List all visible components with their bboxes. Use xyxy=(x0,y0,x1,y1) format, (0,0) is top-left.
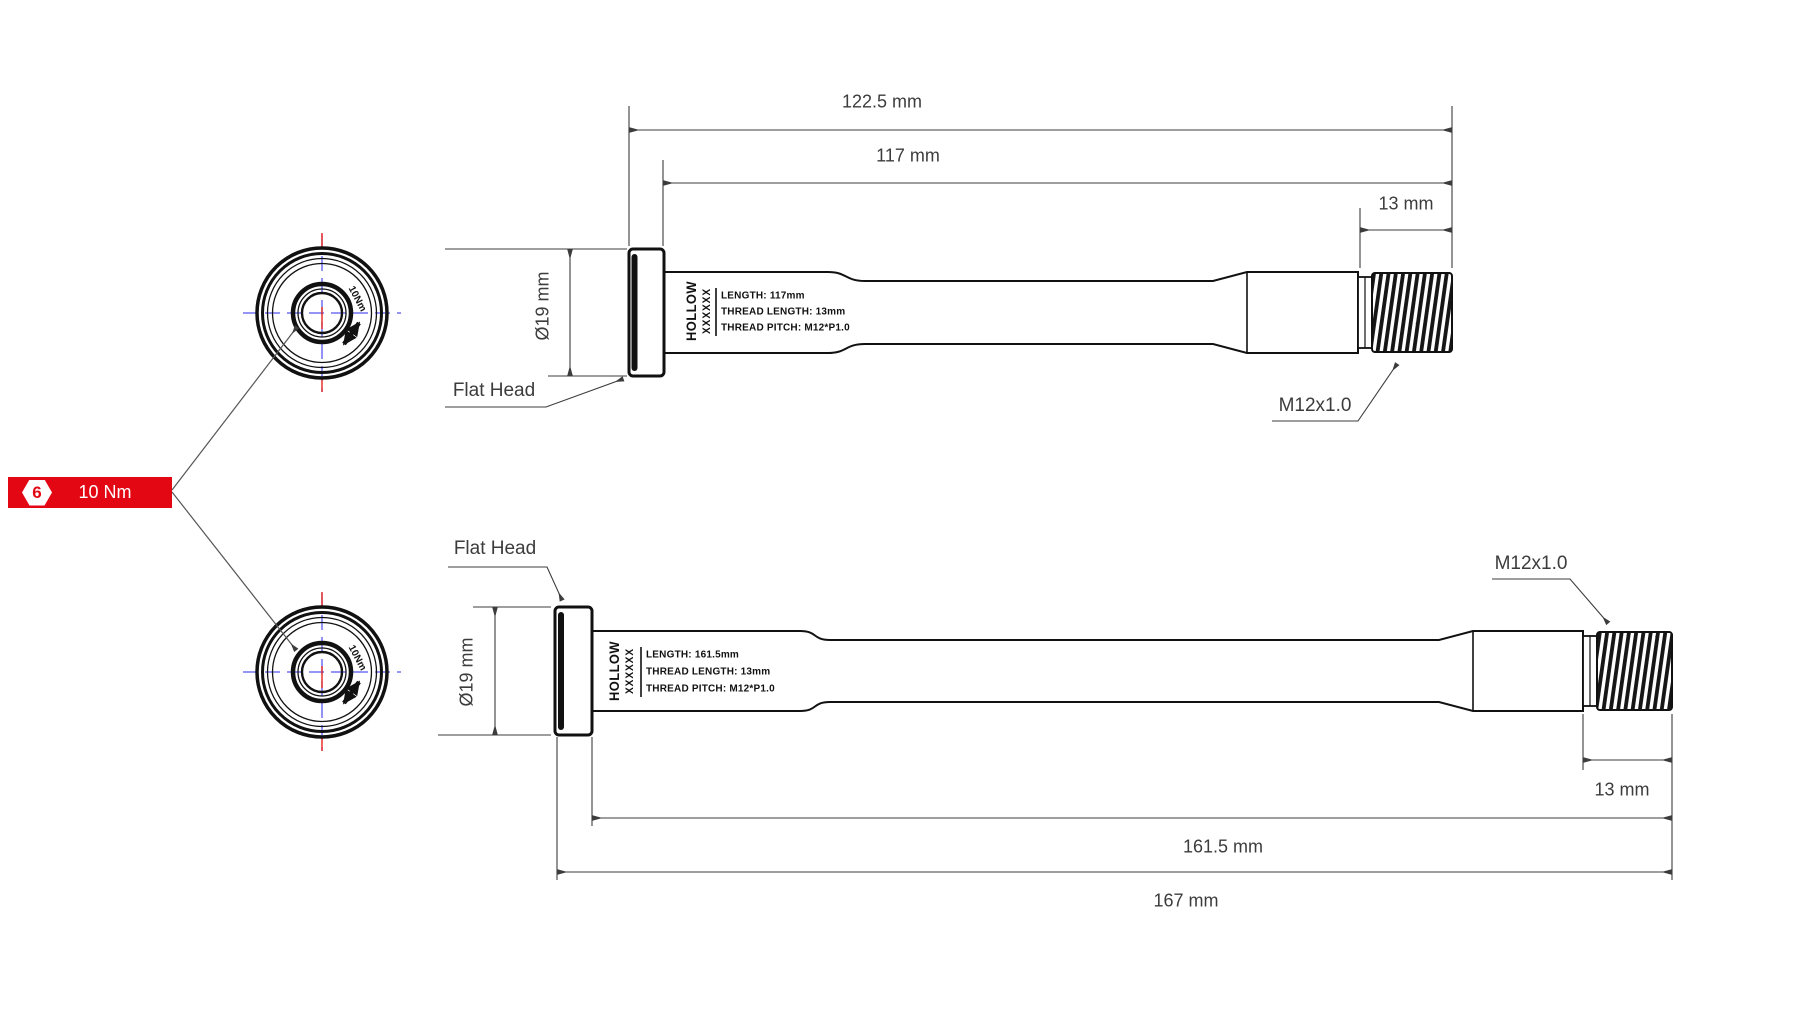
spec-thread-pitch-top: THREAD PITCH: M12*P1.0 xyxy=(721,323,850,334)
end-view-bottom-circle xyxy=(243,592,401,751)
spec-thread-pitch-bottom: THREAD PITCH: M12*P1.0 xyxy=(646,684,775,695)
spec-length-bottom: LENGTH: 161.5mm xyxy=(646,650,739,661)
threaded-end xyxy=(1597,632,1672,710)
dim-length-bottom: 161.5 mm xyxy=(1183,837,1263,858)
brand-text-top: HOLLOW xyxy=(683,281,699,341)
torque-badge-leaders xyxy=(172,327,297,650)
dim-length-top: 117 mm xyxy=(876,146,940,167)
brand-code-bottom: XXXXXX xyxy=(624,648,636,694)
technical-drawing-page: 122.5 mm 117 mm 13 mm Ø19 mm Flat Head M… xyxy=(0,0,1800,1013)
dim-thread-length-top: 13 mm xyxy=(1378,194,1433,215)
dim-head-diameter-bottom: Ø19 mm xyxy=(457,637,478,706)
dim-thread-length-bottom: 13 mm xyxy=(1594,780,1649,801)
hex-size-number: 6 xyxy=(32,483,41,503)
torque-value-label: 10 Nm xyxy=(52,482,172,503)
flat-head-label-top: Flat Head xyxy=(453,380,535,402)
flat-head-label-bottom: Flat Head xyxy=(454,538,536,560)
spec-length-top: LENGTH: 117mm xyxy=(721,291,805,302)
spec-thread-length-top: THREAD LENGTH: 13mm xyxy=(721,307,845,318)
hex-wrench-icon: 6 xyxy=(22,480,52,506)
dim-head-diameter-top: Ø19 mm xyxy=(533,271,554,340)
end-view-top-circle xyxy=(243,233,401,392)
spec-thread-length-bottom: THREAD LENGTH: 13mm xyxy=(646,667,770,678)
thread-spec-label-bottom: M12x1.0 xyxy=(1495,553,1568,575)
dim-overall-length-top: 122.5 mm xyxy=(842,92,922,113)
brand-text-bottom: HOLLOW xyxy=(606,641,622,701)
dim-overall-length-bottom: 167 mm xyxy=(1153,891,1218,912)
thread-spec-label-top: M12x1.0 xyxy=(1279,395,1352,417)
threaded-end xyxy=(1372,273,1452,352)
axle-161-dimensions xyxy=(438,567,1672,880)
axle-117-dimensions xyxy=(445,106,1452,421)
brand-code-top: XXXXXX xyxy=(701,288,713,334)
torque-badge: 6 10 Nm xyxy=(8,477,172,508)
